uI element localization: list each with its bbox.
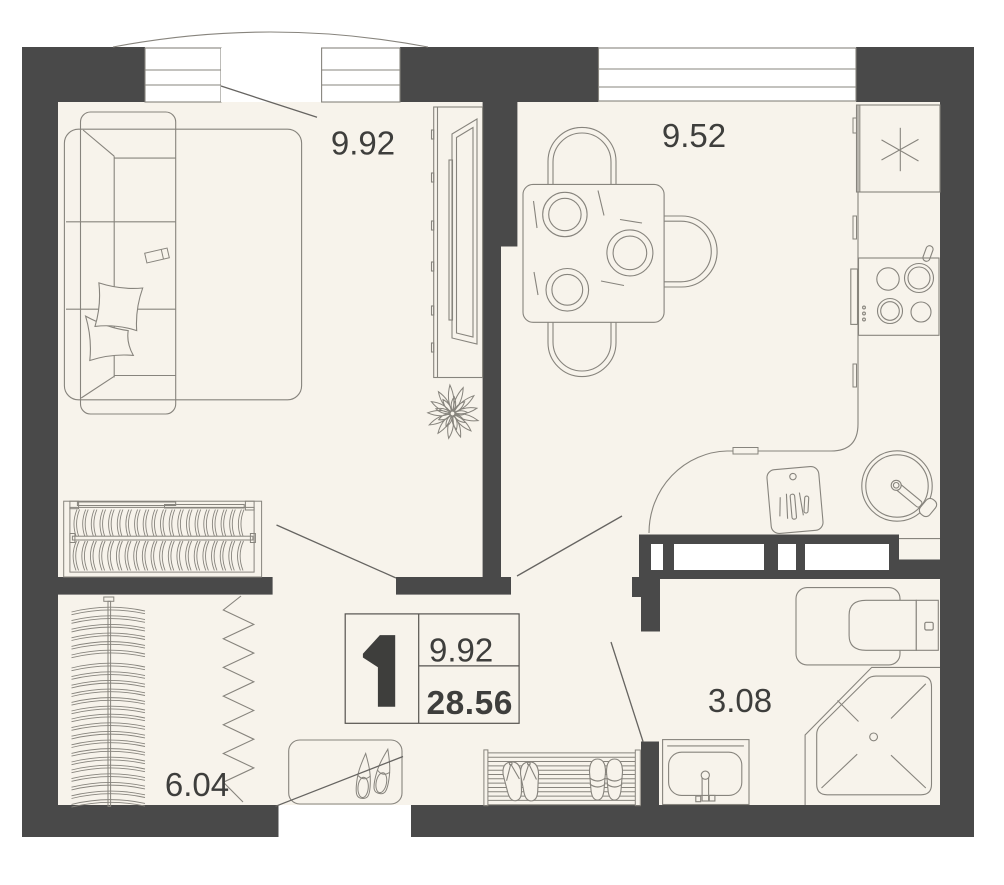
- svg-text:9.52: 9.52: [662, 117, 726, 154]
- svg-text:3.08: 3.08: [708, 682, 772, 719]
- svg-text:28.56: 28.56: [427, 685, 513, 722]
- svg-text:6.04: 6.04: [165, 766, 229, 803]
- svg-text:9.92: 9.92: [331, 125, 395, 162]
- svg-text:9.92: 9.92: [429, 632, 493, 669]
